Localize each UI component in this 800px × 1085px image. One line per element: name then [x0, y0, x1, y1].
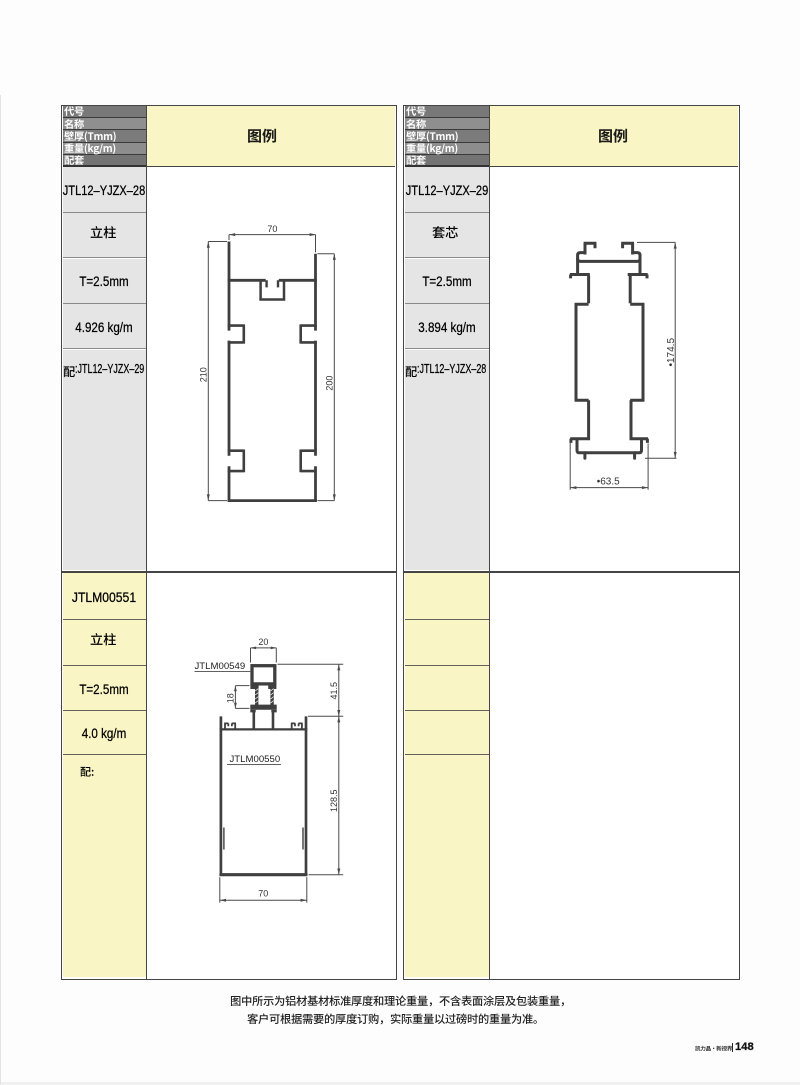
svg-text:128.5: 128.5: [329, 789, 339, 812]
svg-text:•63.5: •63.5: [597, 476, 620, 487]
svg-text:70: 70: [258, 889, 268, 899]
svg-text:41.5: 41.5: [329, 682, 339, 700]
svg-text:20: 20: [258, 637, 268, 647]
svg-text:•174.5: •174.5: [666, 338, 677, 367]
svg-text:210: 210: [198, 367, 208, 382]
svg-text:200: 200: [324, 376, 334, 391]
svg-text:18: 18: [225, 693, 235, 703]
svg-text:JTLM00550: JTLM00550: [230, 754, 281, 765]
svg-text:JTLM00549: JTLM00549: [195, 661, 246, 672]
svg-text:70: 70: [267, 224, 277, 234]
